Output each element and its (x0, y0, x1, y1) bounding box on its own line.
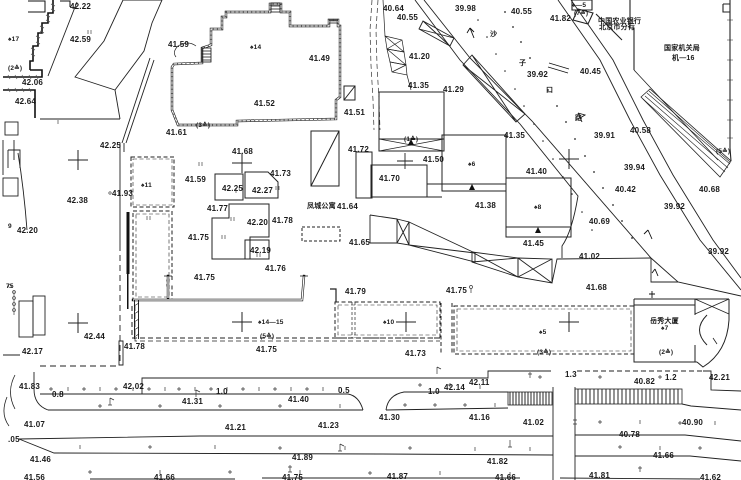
svg-text:42.44: 42.44 (84, 332, 105, 341)
svg-text:1.2: 1.2 (665, 373, 677, 382)
svg-text:1.0: 1.0 (216, 387, 228, 396)
svg-text:♠5: ♠5 (539, 329, 547, 336)
svg-text:41.40: 41.40 (288, 395, 309, 404)
svg-text:(7≙): (7≙) (574, 9, 588, 17)
svg-text:40.58: 40.58 (630, 126, 651, 135)
svg-text:40.55: 40.55 (397, 13, 418, 22)
svg-text:42.11: 42.11 (469, 378, 490, 387)
svg-text:39.98: 39.98 (455, 4, 476, 13)
svg-text:41.16: 41.16 (469, 413, 490, 422)
svg-text:41.76: 41.76 (265, 264, 286, 273)
svg-text:42.17: 42.17 (22, 347, 43, 356)
svg-text:41.02: 41.02 (523, 418, 544, 427)
svg-text:41.20: 41.20 (409, 52, 430, 61)
svg-text:♠10: ♠10 (383, 319, 394, 326)
svg-text:40.68: 40.68 (699, 185, 720, 194)
svg-text:41.56: 41.56 (24, 473, 45, 480)
svg-text:(2≙): (2≙) (8, 64, 22, 72)
svg-text:1.0: 1.0 (428, 387, 440, 396)
svg-text:39.92: 39.92 (527, 70, 548, 79)
svg-text:♠17: ♠17 (8, 36, 19, 43)
svg-text:39.91: 39.91 (594, 131, 615, 140)
svg-text:41.38: 41.38 (475, 201, 496, 210)
svg-text:.05: .05 (8, 435, 20, 444)
svg-text:41.45: 41.45 (523, 239, 544, 248)
svg-text:42.20: 42.20 (17, 226, 38, 235)
svg-text:41.93: 41.93 (112, 189, 133, 198)
svg-text:41.35: 41.35 (408, 81, 429, 90)
svg-text:♠14: ♠14 (250, 44, 261, 51)
svg-text:42.06: 42.06 (22, 78, 43, 87)
svg-text:41.46: 41.46 (30, 455, 51, 464)
svg-text:41.52: 41.52 (254, 99, 275, 108)
svg-text:(3≙): (3≙) (537, 348, 551, 356)
svg-text:0.8: 0.8 (52, 390, 64, 399)
svg-text:♠7: ♠7 (661, 325, 669, 332)
svg-text:40.64: 40.64 (383, 4, 404, 13)
svg-text:41.75: 41.75 (256, 345, 277, 354)
svg-text:41.59: 41.59 (168, 40, 189, 49)
svg-text:42.22: 42.22 (70, 2, 91, 11)
svg-text:0.5: 0.5 (338, 386, 350, 395)
svg-text:42.14: 42.14 (444, 383, 465, 392)
svg-text:40.82: 40.82 (634, 377, 655, 386)
svg-text:40.42: 40.42 (615, 185, 636, 194)
svg-text:41.81: 41.81 (589, 471, 610, 480)
svg-text:42.25: 42.25 (100, 141, 121, 150)
svg-text:42.25: 42.25 (222, 184, 243, 193)
svg-text:(5≙): (5≙) (716, 147, 730, 155)
svg-text:41.07: 41.07 (24, 420, 45, 429)
svg-text:40.69: 40.69 (589, 217, 610, 226)
svg-text:39.92: 39.92 (708, 247, 729, 256)
svg-text:♠11: ♠11 (141, 182, 152, 189)
svg-text:41.23: 41.23 (318, 421, 339, 430)
svg-text:41.70: 41.70 (379, 174, 400, 183)
svg-text:41.21: 41.21 (225, 423, 246, 432)
svg-text:40.55: 40.55 (511, 7, 532, 16)
svg-text:42.20: 42.20 (247, 218, 268, 227)
svg-text:41.50: 41.50 (423, 155, 444, 164)
svg-text:1.3: 1.3 (565, 370, 577, 379)
svg-text:42.19: 42.19 (250, 246, 271, 255)
svg-text:41.30: 41.30 (379, 413, 400, 422)
svg-text:41.68: 41.68 (586, 283, 607, 292)
svg-text:机—16: 机—16 (672, 53, 695, 62)
svg-text:41.66: 41.66 (495, 473, 516, 480)
svg-text:41.64: 41.64 (337, 202, 358, 211)
svg-text:♠6: ♠6 (468, 161, 476, 168)
svg-text:41.78: 41.78 (124, 342, 145, 351)
svg-text:41.75: 41.75 (188, 233, 209, 242)
svg-text:42.59: 42.59 (70, 35, 91, 44)
svg-text:口: 口 (546, 86, 553, 94)
svg-text:41.65: 41.65 (349, 238, 370, 247)
svg-text:41.31: 41.31 (182, 397, 203, 406)
svg-text:41.62: 41.62 (700, 473, 721, 480)
svg-text:40.45: 40.45 (580, 67, 601, 76)
svg-text:42.27: 42.27 (252, 186, 273, 195)
svg-text:北京市分行: 北京市分行 (599, 22, 635, 31)
svg-text:41.83: 41.83 (19, 382, 40, 391)
svg-text:41.77: 41.77 (207, 204, 228, 213)
svg-text:39.92: 39.92 (664, 202, 685, 211)
svg-text:41.35: 41.35 (504, 131, 525, 140)
svg-text:(3≙): (3≙) (196, 121, 210, 129)
svg-text:(5≙): (5≙) (260, 332, 274, 340)
svg-text:41.89: 41.89 (292, 453, 313, 462)
svg-text:♠—5: ♠—5 (572, 2, 586, 9)
svg-text:42.02: 42.02 (123, 382, 144, 391)
svg-text:41.78: 41.78 (272, 216, 293, 225)
svg-text:39.94: 39.94 (624, 163, 645, 172)
svg-text:41.79: 41.79 (345, 287, 366, 296)
svg-text:41.82: 41.82 (550, 14, 571, 23)
svg-text:42.64: 42.64 (15, 97, 36, 106)
svg-text:41.72: 41.72 (348, 145, 369, 154)
svg-text:41.66: 41.66 (154, 473, 175, 480)
svg-text:40.90: 40.90 (682, 418, 703, 427)
svg-text:国家机关局: 国家机关局 (664, 43, 700, 52)
svg-text:75: 75 (6, 283, 14, 290)
svg-text:41.61: 41.61 (166, 128, 187, 137)
svg-text:40.78: 40.78 (619, 430, 640, 439)
svg-text:9: 9 (8, 223, 12, 230)
svg-text:岳秀大厦: 岳秀大厦 (650, 316, 680, 325)
svg-text:凤城公寓: 凤城公寓 (307, 201, 336, 210)
svg-text:(2≙): (2≙) (659, 348, 673, 356)
svg-text:41.75: 41.75 (194, 273, 215, 282)
svg-text:子: 子 (519, 59, 526, 67)
svg-text:♠8: ♠8 (534, 204, 542, 211)
svg-text:41.82: 41.82 (487, 457, 508, 466)
svg-text:41.75: 41.75 (282, 473, 303, 480)
svg-text:41.51: 41.51 (344, 108, 365, 117)
svg-text:41.75: 41.75 (446, 286, 467, 295)
svg-text:41.87: 41.87 (387, 472, 408, 480)
svg-text:41.29: 41.29 (443, 85, 464, 94)
svg-text:41.73: 41.73 (405, 349, 426, 358)
svg-text:42.38: 42.38 (67, 196, 88, 205)
svg-text:♠14—15: ♠14—15 (258, 319, 284, 326)
svg-text:41.68: 41.68 (232, 147, 253, 156)
svg-text:41.66: 41.66 (653, 451, 674, 460)
svg-text:42.21: 42.21 (709, 373, 730, 382)
svg-text:41.40: 41.40 (526, 167, 547, 176)
svg-text:41.73: 41.73 (270, 169, 291, 178)
svg-text:41.02: 41.02 (579, 252, 600, 261)
svg-text:41.49: 41.49 (309, 54, 330, 63)
svg-text:41.59: 41.59 (185, 175, 206, 184)
svg-text:沙: 沙 (490, 30, 497, 38)
